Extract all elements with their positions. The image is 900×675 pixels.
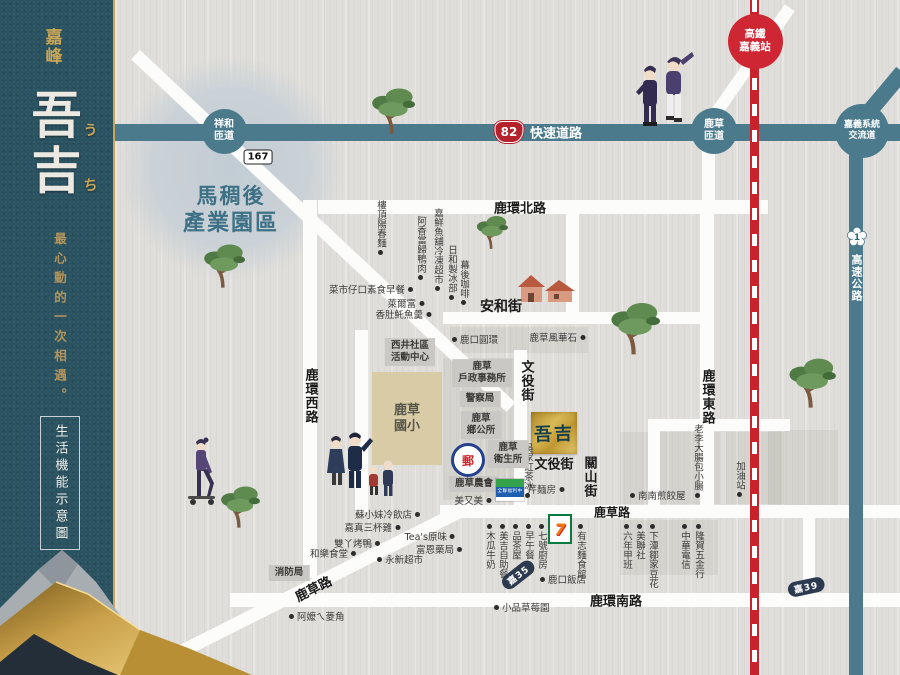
poi: 中華電信 — [679, 524, 689, 569]
road-label: 快速道路 — [530, 123, 582, 142]
public-facility-box: 鹿草鄉公所 — [461, 411, 502, 439]
poi-label: 下潭鄒家豆花 — [647, 531, 657, 588]
poi: 美又美 — [454, 493, 491, 507]
public-facility-box: 西井社區活動中心 — [385, 338, 435, 366]
poi: 早午餐 — [523, 524, 533, 560]
poi-label: 品茶屋 — [510, 531, 520, 560]
poi-dot-icon — [419, 301, 424, 306]
poi: 小品草莓園 — [494, 600, 550, 614]
poi-label: 六年甲班 — [621, 531, 631, 569]
poi-dot-icon — [737, 492, 742, 497]
chiayi-system-interchange-label: 嘉義系統交流道 — [835, 104, 889, 158]
public-facility-box: 鹿草農會 — [449, 476, 499, 492]
poi-label: 日和製冰部 — [446, 245, 456, 293]
poi-dot-icon — [696, 524, 701, 529]
poi-label: 木瓜牛奶 — [484, 531, 494, 569]
road-label: 鹿環西路 — [301, 368, 320, 424]
poi-label: 美吉自助餐 — [497, 531, 507, 579]
poi: 木瓜牛奶 — [484, 524, 494, 569]
poi: 有志麵食館 — [575, 524, 585, 579]
poi-label: 阿香當歸鴨肉 — [415, 216, 425, 273]
road-label: 文役街 — [534, 454, 573, 473]
poi-label: 七號廚房 — [536, 531, 546, 569]
svg-text:1: 1 — [854, 233, 860, 243]
poi: 幕後咖啡 — [458, 260, 468, 305]
poi-label: 菜市仔口素食早餐 — [329, 282, 405, 296]
poi-label: 嘉真三杯雞 — [344, 520, 392, 534]
poi: 南南煎餃屋 — [630, 488, 686, 502]
poi-dot-icon — [378, 250, 383, 255]
poi-label: 小品草莓園 — [502, 600, 550, 614]
poi-dot-icon — [630, 493, 635, 498]
route-badge-167: 167 — [244, 150, 273, 165]
poi-dot-icon — [457, 547, 462, 552]
poi-dot-icon — [559, 487, 564, 492]
poi-dot-icon — [539, 524, 544, 529]
public-facility-box: 警察局 — [460, 391, 501, 407]
public-facility-box: 消防局 — [269, 565, 310, 581]
map-type-box: 生活機能示意圖 — [40, 416, 80, 550]
route-badge-嘉39: 嘉39 — [787, 576, 826, 598]
poi: 樓頂陽春麵 — [375, 200, 385, 255]
poi: 老李大腸包小腸 — [692, 424, 702, 498]
road-label: 鹿環北路 — [494, 198, 546, 217]
poi: 美吉自助餐 — [497, 524, 507, 579]
poi-dot-icon — [452, 337, 457, 342]
map-labels-layer: 祥和匝道鹿草匝道嘉義系統交流道高鐵嘉義站16782 1嘉35嘉39快速道路高速公… — [0, 0, 900, 675]
poi-label: 芹麵房 — [527, 482, 556, 496]
poi: 阿香當歸鴨肉 — [415, 216, 425, 280]
route-badge-1: 1 — [847, 227, 867, 247]
poi: 鹿口飯店 — [540, 572, 586, 586]
poi-dot-icon — [580, 335, 585, 340]
brand-tagline: 最心動的一次相遇。 — [50, 232, 69, 408]
brand-char-1: 吾 う — [32, 88, 82, 143]
poi-dot-icon — [637, 524, 642, 529]
poi-dot-icon — [395, 525, 400, 530]
brand-name: 吾 う 吉 ち — [0, 88, 113, 198]
poi: Tea's原味 — [405, 529, 455, 543]
poi: 品茶屋 — [510, 524, 520, 560]
pxmart-icon: 全聯福利中心 — [496, 479, 524, 501]
poi: 下潭鄒家豆花 — [647, 524, 657, 588]
road-label: 關山街 — [580, 456, 599, 498]
poi-dot-icon — [540, 577, 545, 582]
poi-label: 鹿草風華石 — [529, 330, 577, 344]
brand-char-2: 吉 ち — [32, 143, 82, 198]
poi: 阿嬤ㄟ菱角 — [289, 609, 345, 623]
poi: 美聯社 — [634, 524, 644, 560]
poi-dot-icon — [487, 524, 492, 529]
poi-dot-icon — [426, 312, 431, 317]
poi-dot-icon — [682, 524, 687, 529]
poi-label: 加油站 — [734, 461, 744, 490]
poi-dot-icon — [461, 300, 466, 305]
poi: 日和製冰部 — [446, 245, 456, 300]
poi-label: 中華電信 — [679, 531, 689, 569]
poi-dot-icon — [578, 524, 583, 529]
poi-dot-icon — [650, 524, 655, 529]
public-facility-box: 鹿草衛生所 — [488, 440, 529, 468]
poi-dot-icon — [435, 286, 440, 291]
poi-dot-icon — [500, 524, 505, 529]
road-label: 鹿環東路 — [698, 369, 717, 425]
poi-label: 阿嬤ㄟ菱角 — [297, 609, 345, 623]
sidebar: 嘉峰 吾 う 吉 ち 最心動的一次相遇。 生活機能示意圖 — [0, 0, 115, 675]
poi-dot-icon — [418, 275, 423, 280]
poi: 隆賀五金行 — [693, 524, 703, 579]
poi-label: 美又美 — [454, 493, 483, 507]
poi-dot-icon — [415, 512, 420, 517]
poi-dot-icon — [494, 605, 499, 610]
poi-label: Tea's原味 — [405, 529, 447, 543]
poi-label: 早午餐 — [523, 531, 533, 560]
poi: 香肚魠魚羹 — [375, 307, 431, 321]
road-label: 高速公路 — [848, 254, 864, 302]
hsr-chiayi-station-label: 高鐵嘉義站 — [728, 14, 783, 69]
poi-dot-icon — [450, 534, 455, 539]
poi-label: 樓頂陽春麵 — [375, 200, 385, 248]
poi-label: 美聯社 — [634, 531, 644, 560]
builder-logo: 嘉峰 — [38, 28, 64, 66]
road-label: 文役街 — [517, 360, 536, 402]
brand-kana-2: ち — [84, 179, 98, 194]
poi: 菜市仔口素食早餐 — [329, 282, 413, 296]
poi: 鹿口圓環 — [452, 332, 498, 346]
poi-label: 鹿口圓環 — [460, 332, 498, 346]
poi-label: 蘇小妹冷飲店 — [355, 507, 412, 521]
poi: 和樂食堂 — [310, 546, 356, 560]
poi-label: 和樂食堂 — [310, 546, 348, 560]
poi: 富恩藥局 — [416, 542, 462, 556]
poi-label: 幕後咖啡 — [458, 260, 468, 298]
poi-label: 香肚魠魚羹 — [375, 307, 423, 321]
poi-label: 鹿口飯店 — [548, 572, 586, 586]
poi: 六年甲班 — [621, 524, 631, 569]
poi-dot-icon — [375, 541, 380, 546]
road-label: 安和街 — [480, 296, 522, 316]
seven-eleven-icon: 7 — [548, 514, 572, 544]
road-label: 鹿草路 — [594, 504, 630, 521]
poi-label: 富恩藥局 — [416, 542, 454, 556]
public-facility-box: 鹿草戶政事務所 — [452, 359, 512, 387]
poi-label: 老李大腸包小腸 — [692, 424, 702, 491]
poi-dot-icon — [351, 551, 356, 556]
poi-dot-icon — [486, 498, 491, 503]
poi-dot-icon — [526, 524, 531, 529]
poi: 蘇小妹冷飲店 — [355, 507, 420, 521]
location-map-page: 馬稠後 產業園區 鹿草 國小 吾吉 郵 7 全聯福利中心 — [0, 0, 900, 675]
poi: 鹿草風華石 — [529, 330, 585, 344]
poi-dot-icon — [408, 287, 413, 292]
brand-kana-1: う — [84, 124, 98, 139]
poi: 七號廚房 — [536, 524, 546, 569]
poi-label: 嘉鮮魚舖冷凍超市 — [432, 208, 442, 284]
road-label: 鹿環南路 — [590, 591, 642, 610]
lucao-ramp-label: 鹿草匝道 — [691, 108, 737, 154]
poi-dot-icon — [513, 524, 518, 529]
post-office-icon: 郵 — [451, 443, 485, 477]
poi-dot-icon — [449, 295, 454, 300]
poi-label: 南南煎餃屋 — [638, 488, 686, 502]
poi-label: 隆賀五金行 — [693, 531, 703, 579]
poi: 芹麵房 — [527, 482, 564, 496]
poi-dot-icon — [377, 557, 382, 562]
route-badge-82: 82 — [495, 121, 524, 143]
poi-dot-icon — [289, 614, 294, 619]
poi-dot-icon — [695, 493, 700, 498]
poi-dot-icon — [624, 524, 629, 529]
xianghe-ramp-label: 祥和匝道 — [202, 109, 247, 154]
poi: 嘉鮮魚舖冷凍超市 — [432, 208, 442, 291]
poi: 加油站 — [734, 461, 744, 497]
poi: 嘉真三杯雞 — [344, 520, 400, 534]
